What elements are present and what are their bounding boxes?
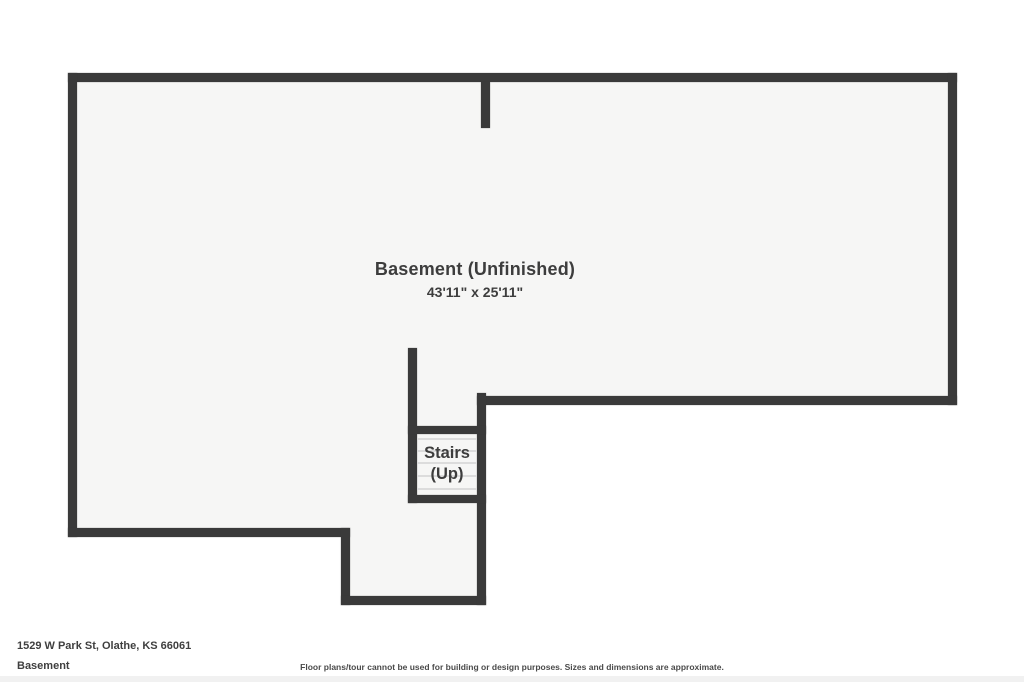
stairs-label-line2: (Up) (409, 464, 485, 485)
floorplan-page: Basement (Unfinished) 43'11" x 25'11" St… (0, 0, 1024, 682)
wall-lower-section-bottom (341, 596, 486, 605)
wall-left-section-bottom (68, 528, 350, 537)
stairs-label: Stairs (Up) (409, 443, 485, 485)
bottom-edge-divider (0, 676, 1024, 682)
floor-area-main-room (68, 73, 957, 405)
stair-tread-line (417, 438, 477, 440)
wall-left (68, 73, 77, 537)
stair-tread-line (417, 488, 477, 490)
wall-top (68, 73, 957, 82)
wall-main-room-bottom (477, 396, 957, 405)
wall-top-stub (481, 82, 490, 128)
wall-stairs-top (408, 426, 486, 434)
wall-right (948, 73, 957, 405)
stairs-label-line1: Stairs (409, 443, 485, 464)
floor-area-lower-section (341, 537, 486, 605)
wall-stairs-bottom (408, 495, 486, 503)
wall-lower-section-left (341, 528, 350, 605)
property-address-label: 1529 W Park St, Olathe, KS 66061 (17, 640, 191, 652)
room-name-label: Basement (Unfinished) (295, 259, 655, 280)
room-dimensions-label: 43'11" x 25'11" (315, 284, 635, 300)
disclaimer-text: Floor plans/tour cannot be used for buil… (0, 662, 1024, 672)
